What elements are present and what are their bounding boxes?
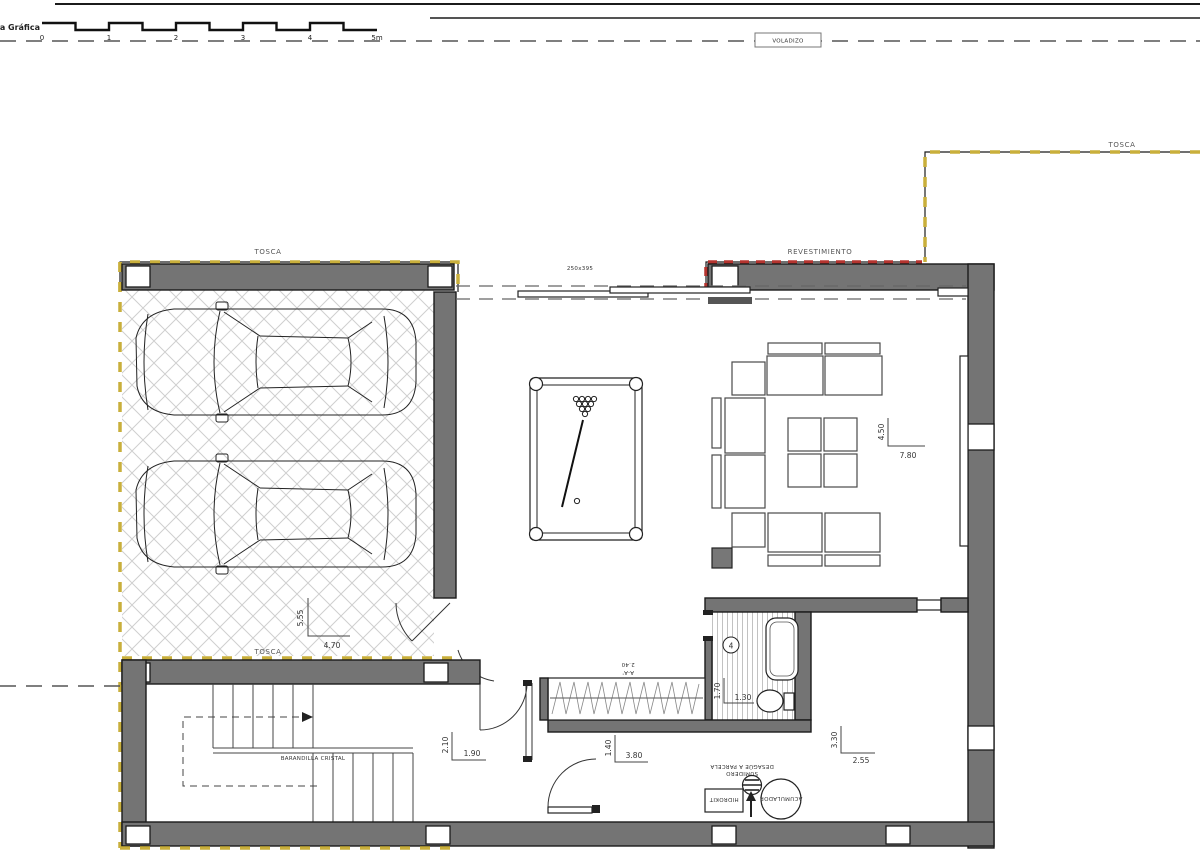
corridor-dimensions: 1.40 3.80 — [604, 735, 648, 762]
sofa-backrest — [712, 455, 721, 508]
garage-depth-dim: 5.55 — [296, 609, 305, 626]
sofa-backrest — [712, 398, 721, 448]
coffee-table — [788, 418, 857, 487]
column — [712, 266, 738, 287]
acumulador-tank: ACUMULADOR — [760, 779, 803, 819]
section-ref-label: A-A' — [622, 669, 634, 675]
garage-width-dim: 4.70 — [324, 641, 341, 650]
side-table — [712, 548, 732, 568]
tosca-site-label: TOSCA — [1108, 141, 1136, 149]
store-dimensions: 3.30 2.55 — [830, 726, 875, 765]
sliding-door-panel — [610, 287, 750, 293]
pool-table — [530, 378, 643, 541]
sumidero-label-group: SUMIDERO DESAGÜE A PARCELA — [710, 763, 774, 776]
column — [126, 266, 150, 287]
hidrokit-unit: HIDROKIT — [705, 789, 743, 812]
column — [712, 826, 736, 844]
bathtub — [766, 618, 798, 680]
pocket — [630, 528, 643, 541]
landing-door — [480, 684, 527, 730]
store-room: 3.30 2.55 — [830, 726, 875, 765]
store-width-dim: 2.55 — [853, 756, 870, 765]
tosca-site-boundary: TOSCA — [925, 141, 1200, 262]
acumulador-label: ACUMULADOR — [760, 795, 803, 801]
column — [426, 826, 450, 844]
landing-depth-dim: 2.10 — [441, 736, 450, 753]
bathroom-number-badge: 4 — [723, 637, 739, 653]
sofa-cushion — [725, 398, 765, 453]
pocket — [530, 378, 543, 391]
bathroom-left-wall — [705, 640, 712, 720]
staircase: BARANDILLA CRISTAL — [183, 684, 413, 822]
sofa-backrest — [825, 343, 880, 354]
door-jamb — [703, 636, 713, 641]
sumidero-label-2: DESAGÜE A PARCELA — [710, 763, 774, 770]
scale-bar-title: Escala Gráfica — [0, 23, 40, 32]
right-wall — [968, 264, 994, 848]
column — [968, 726, 994, 750]
utility-area: 1.40 3.80 SUMIDERO DESAGÜE A PARCELA ACU… — [604, 735, 802, 819]
closet: A-A' 2.40 — [540, 661, 705, 720]
landing-dimensions: 2.10 1.90 — [441, 732, 486, 760]
window-strip — [960, 356, 968, 546]
column — [968, 424, 994, 450]
direction-arrow — [302, 712, 313, 722]
sofa-cushion — [732, 362, 765, 395]
column — [424, 663, 448, 682]
living-room: REVESTIMIENTO 250x395 — [456, 248, 994, 848]
sofa-set — [712, 343, 882, 568]
floor-plan-svg: Escala Gráfica 0 1 2 3 4 5m VOLADIZO TOS… — [0, 0, 1200, 850]
bottom-wall — [120, 822, 994, 848]
sofa-cushion — [767, 356, 823, 395]
column — [886, 826, 910, 844]
scale-tick-2: 2 — [174, 34, 178, 42]
bathroom-width-dim: 1.30 — [735, 693, 752, 702]
toilet — [757, 690, 794, 712]
sofa-cushion — [825, 513, 880, 552]
corridor-depth-dim: 1.40 — [604, 739, 613, 756]
scale-bar-steps — [42, 23, 377, 30]
store-depth-dim: 3.30 — [830, 731, 839, 748]
floor-plan-sheet: Escala Gráfica 0 1 2 3 4 5m VOLADIZO TOS… — [0, 0, 1200, 850]
door-jamb — [703, 610, 713, 615]
revestimiento-label: REVESTIMIENTO — [788, 248, 853, 256]
stair-direction-line — [183, 712, 317, 786]
bathroom-top-wall — [705, 598, 917, 612]
wall-segment — [941, 598, 968, 612]
column — [428, 266, 452, 287]
barandilla-label: BARANDILLA CRISTAL — [281, 756, 346, 762]
voladizo-label: VOLADIZO — [772, 39, 804, 45]
corridor-door — [548, 759, 600, 813]
garage-right-wall — [434, 292, 456, 598]
voladizo-overhang: VOLADIZO — [0, 33, 1200, 47]
door-jamb — [592, 805, 600, 813]
sofa-backrest — [825, 555, 880, 566]
tosca-garage-bottom-label: TOSCA — [254, 648, 282, 656]
scale-bar: Escala Gráfica 0 1 2 3 4 5m — [0, 23, 383, 42]
hidrokit-label: HIDROKIT — [709, 796, 738, 802]
tosca-garage-top-label: TOSCA — [254, 248, 282, 256]
flow-arrow — [746, 791, 756, 817]
pocket — [630, 378, 643, 391]
door-sill — [708, 297, 752, 304]
corridor-wall — [548, 720, 811, 732]
stairs-room: BARANDILLA CRISTAL 2.10 1.90 — [0, 660, 600, 846]
sofa-cushion — [732, 513, 765, 547]
bathroom-number: 4 — [729, 642, 734, 651]
section-ref-value: 2.40 — [621, 661, 635, 667]
living-dimensions: 4.50 7.80 — [877, 418, 925, 460]
living-width-dim: 7.80 — [900, 451, 917, 460]
corridor-width-dim: 3.80 — [626, 751, 643, 760]
closet-jamb-wall — [540, 678, 548, 720]
stair-treads-upper — [213, 684, 313, 748]
sofa-backrest — [768, 555, 822, 566]
drain — [743, 776, 762, 795]
sliding-door-pocket — [938, 288, 968, 296]
landing-width-dim: 1.90 — [464, 749, 481, 758]
section-label-group: A-A' 2.40 — [621, 661, 635, 675]
hall-door-frame — [523, 680, 532, 762]
living-depth-dim: 4.50 — [877, 423, 886, 440]
stair-treads-lower — [313, 753, 413, 822]
column — [126, 826, 150, 844]
bathroom-depth-dim: 1.70 — [713, 682, 722, 699]
sofa-cushion — [825, 356, 882, 395]
window-size-label: 250x395 — [567, 266, 594, 272]
sofa-backrest — [768, 343, 822, 354]
sofa-cushion — [725, 455, 765, 508]
sofa-cushion — [768, 513, 822, 552]
garage-top-wall — [122, 264, 454, 290]
stairs-left-wall — [122, 660, 146, 846]
wall-window-slot — [917, 600, 941, 610]
pocket — [530, 528, 543, 541]
tosca-site-dashed-line — [925, 152, 1200, 262]
